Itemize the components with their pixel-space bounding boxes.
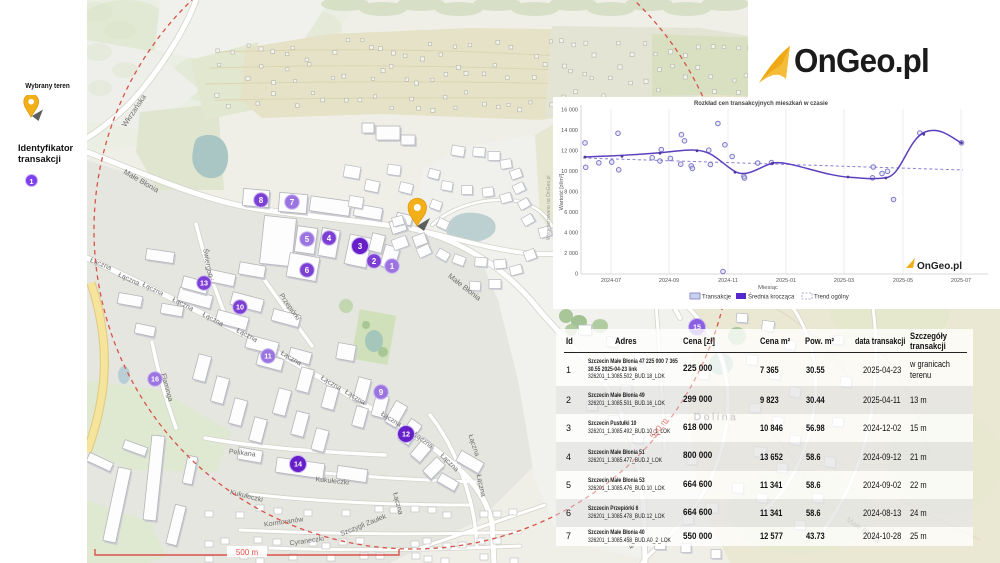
svg-text:6: 6 — [305, 266, 310, 275]
svg-text:Wartość [zł/m²]: Wartość [zł/m²] — [559, 173, 565, 210]
svg-text:12 000: 12 000 — [561, 149, 578, 155]
svg-text:Rozkład cen transakcyjnych mie: Rozkład cen transakcyjnych mieszkań w cz… — [694, 100, 828, 107]
svg-text:500 m: 500 m — [236, 548, 259, 557]
svg-text:12: 12 — [402, 430, 410, 439]
svg-text:Miesiąc: Miesiąc — [758, 285, 778, 291]
svg-text:0: 0 — [575, 272, 578, 278]
svg-text:2025-07: 2025-07 — [951, 278, 971, 284]
svg-text:2: 2 — [372, 257, 377, 266]
svg-text:16: 16 — [151, 375, 159, 384]
svg-text:13: 13 — [200, 279, 208, 288]
svg-text:5: 5 — [305, 235, 310, 244]
svg-text:Transakcje: Transakcje — [702, 295, 732, 301]
svg-text:1: 1 — [390, 262, 395, 271]
svg-text:2024-09: 2024-09 — [659, 278, 679, 284]
svg-text:Wygenerowano na OnGeo.pl: Wygenerowano na OnGeo.pl — [546, 176, 552, 240]
svg-text:500 m: 500 m — [647, 416, 669, 441]
svg-text:2024-11: 2024-11 — [718, 278, 738, 284]
svg-text:8 000: 8 000 — [564, 190, 578, 196]
svg-text:2025-05: 2025-05 — [893, 278, 913, 284]
svg-text:14 000: 14 000 — [561, 128, 578, 134]
svg-text:Średnia krocząca: Średnia krocząca — [748, 293, 795, 301]
svg-text:Trend ogólny: Trend ogólny — [814, 295, 849, 301]
svg-text:2024-07: 2024-07 — [601, 278, 621, 284]
svg-text:10: 10 — [236, 303, 244, 312]
svg-text:9: 9 — [379, 388, 384, 397]
svg-text:Dolina: Dolina — [694, 411, 739, 423]
svg-text:2025-01: 2025-01 — [776, 278, 796, 284]
svg-text:16 000: 16 000 — [561, 108, 578, 114]
svg-text:2 000: 2 000 — [564, 251, 578, 257]
svg-text:6 000: 6 000 — [564, 210, 578, 216]
svg-text:7: 7 — [290, 198, 295, 207]
svg-text:2025-03: 2025-03 — [834, 278, 854, 284]
svg-text:8: 8 — [259, 196, 264, 205]
svg-text:OnGeo.pl: OnGeo.pl — [917, 261, 962, 272]
svg-text:11: 11 — [264, 352, 272, 361]
svg-text:4 000: 4 000 — [564, 231, 578, 237]
svg-text:4: 4 — [327, 234, 332, 243]
svg-text:3: 3 — [358, 242, 363, 251]
svg-text:14: 14 — [294, 460, 302, 469]
